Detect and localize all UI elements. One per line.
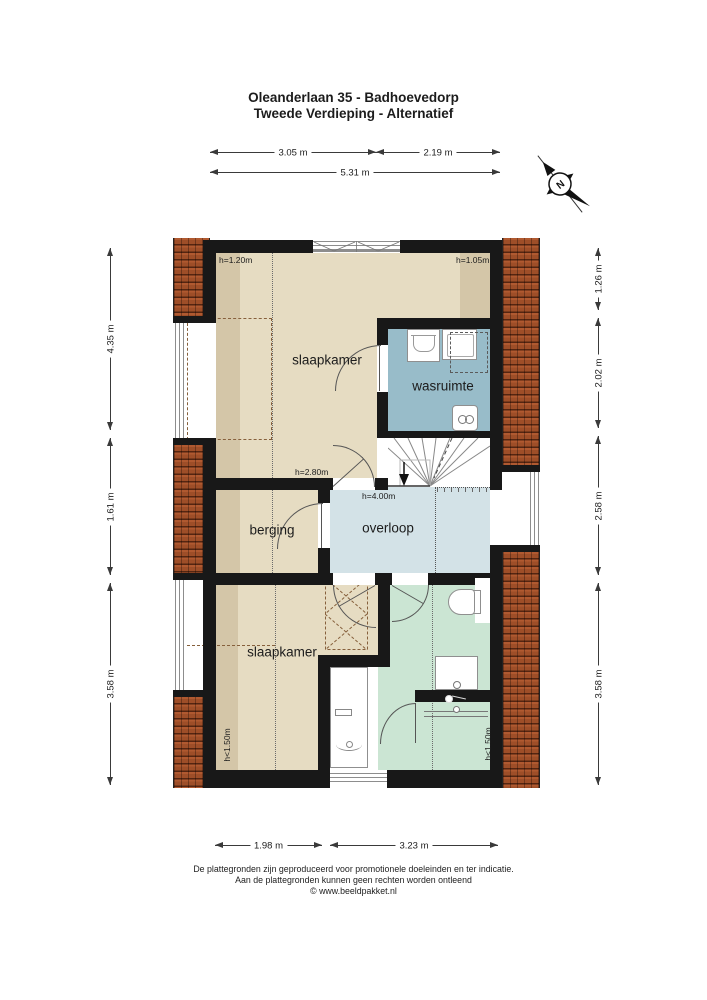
window-left-top [175, 323, 184, 438]
wall-bottom-left [210, 770, 330, 788]
wall-top-right [400, 240, 502, 253]
wall-left-upper [203, 240, 216, 323]
floorplan-page: Oleanderlaan 35 - Badhoevedorp Tweede Ve… [0, 0, 707, 1000]
door-gap-slaapkamer-bottom [333, 573, 375, 585]
dim-top-1: 3.05 m [210, 152, 376, 153]
low-ceiling-shade-berging [216, 490, 240, 573]
bathtub [330, 667, 368, 768]
wall-cap-left-4 [173, 690, 216, 697]
window-left-bottom [175, 580, 184, 690]
boiler-dial-2 [465, 415, 474, 424]
dim-label: 5.31 m [336, 168, 373, 179]
room-label-slaapkamer-bottom: slaapkamer [247, 645, 317, 660]
low-height-dashed-zone-top [187, 318, 272, 440]
dim-left-1: 4.35 m [110, 248, 111, 430]
window-right [530, 472, 539, 545]
dim-label: 1.98 m [250, 841, 287, 852]
compass-north-icon: N [528, 146, 592, 222]
room-label-slaapkamer-top: slaapkamer [292, 353, 362, 368]
stair-void-ticks [437, 488, 490, 492]
dim-bottom-1: 1.98 m [215, 845, 322, 846]
room-label-berging: berging [249, 523, 294, 538]
height-label-bottom-right: h<1.50m [483, 727, 493, 760]
washbasin-bowl [413, 336, 435, 352]
height-line-slaapkamer-bottom [275, 585, 276, 770]
dormer-alcove-right [502, 472, 530, 545]
wall-wasruimte-bottom [377, 431, 502, 438]
wall-bottom-right [387, 770, 502, 788]
dim-left-2: 1.61 m [110, 438, 111, 575]
wall-cap-left-1 [173, 316, 216, 323]
washbasin [407, 329, 440, 362]
height-label-mid-door: h=2.80m [295, 467, 328, 477]
dim-right-2: 2.02 m [598, 318, 599, 428]
vent-duct-dashed [450, 332, 488, 373]
wall-wasruimte-top [377, 318, 502, 329]
dim-label: 3.58 m [594, 665, 605, 702]
room-label-overloop: overloop [362, 521, 414, 536]
height-line-badkamer [432, 585, 433, 770]
height-label-overloop: h=4.00m [362, 491, 395, 501]
dim-right-1: 1.26 m [598, 248, 599, 310]
dim-right-4: 3.58 m [598, 583, 599, 785]
wall-cap-left-2 [173, 438, 216, 445]
title-address: Oleanderlaan 35 - Badhoevedorp [0, 90, 707, 106]
dim-label: 2.19 m [419, 148, 456, 159]
bathtub-curve [336, 738, 362, 751]
shower-drain [453, 681, 461, 689]
wall-cap-right-1 [490, 465, 540, 472]
bathtub-faucet [335, 709, 352, 716]
wall-step [318, 655, 390, 667]
shower-tray [435, 656, 478, 690]
height-line-slaapkamer-top [272, 253, 273, 478]
page-title: Oleanderlaan 35 - Badhoevedorp Tweede Ve… [0, 90, 707, 122]
height-label-top-left: h=1.20m [219, 255, 252, 265]
window-top-tilt-lines [313, 241, 400, 252]
dim-top-total: 5.31 m [210, 172, 500, 173]
boiler [452, 405, 478, 431]
footer-copyright: © www.beeldpakket.nl [0, 886, 707, 897]
stairs [388, 438, 490, 487]
roof-tiles-right-bottom [502, 552, 540, 788]
dim-label: 1.61 m [106, 488, 117, 525]
dim-top-2: 2.19 m [376, 152, 500, 153]
room-label-wasruimte: wasruimte [412, 379, 474, 394]
dim-bottom-2: 3.23 m [330, 845, 498, 846]
dim-label: 3.05 m [274, 148, 311, 159]
floor-slaapkamer-top-upper [216, 253, 490, 318]
footer-line-2: Aan de plattegronden kunnen geen rechten… [0, 875, 707, 886]
dim-label: 2.02 m [594, 354, 605, 391]
dim-label: 3.58 m [106, 665, 117, 702]
dim-left-3: 3.58 m [110, 583, 111, 785]
wall-left-mid [203, 438, 216, 580]
dormer-alcove-bottom-left [184, 580, 203, 690]
height-label-top-right: h=1.05m [456, 255, 489, 265]
toilet-bowl [448, 589, 475, 615]
wall-top-left [203, 240, 313, 253]
footer-line-1: De plattegronden zijn geproduceerd voor … [0, 864, 707, 875]
washbasin-rim [411, 335, 436, 336]
wall-bathtub-left [318, 667, 330, 770]
roof-tiles-right-top [502, 238, 540, 465]
dim-label: 3.23 m [395, 841, 432, 852]
footer-disclaimer: De plattegronden zijn geproduceerd voor … [0, 864, 707, 897]
wall-right-upper [490, 240, 502, 490]
height-label-bottom-left: h<1.50m [222, 728, 232, 761]
dim-label: 1.26 m [594, 260, 605, 297]
stair-void-outline [435, 487, 490, 573]
showerhead-icon [443, 693, 469, 703]
dim-label: 4.35 m [106, 320, 117, 357]
wall-left-lower [203, 580, 216, 788]
door-gap-badkamer [392, 573, 428, 585]
rail-hook [453, 706, 460, 713]
dim-right-3: 2.58 m [598, 436, 599, 575]
wall-cap-right-2 [490, 545, 540, 552]
title-floor: Tweede Verdieping - Alternatief [0, 106, 707, 122]
window-bottom [330, 773, 387, 782]
dim-label: 2.58 m [594, 487, 605, 524]
wall-closet-badkamer [378, 585, 390, 655]
